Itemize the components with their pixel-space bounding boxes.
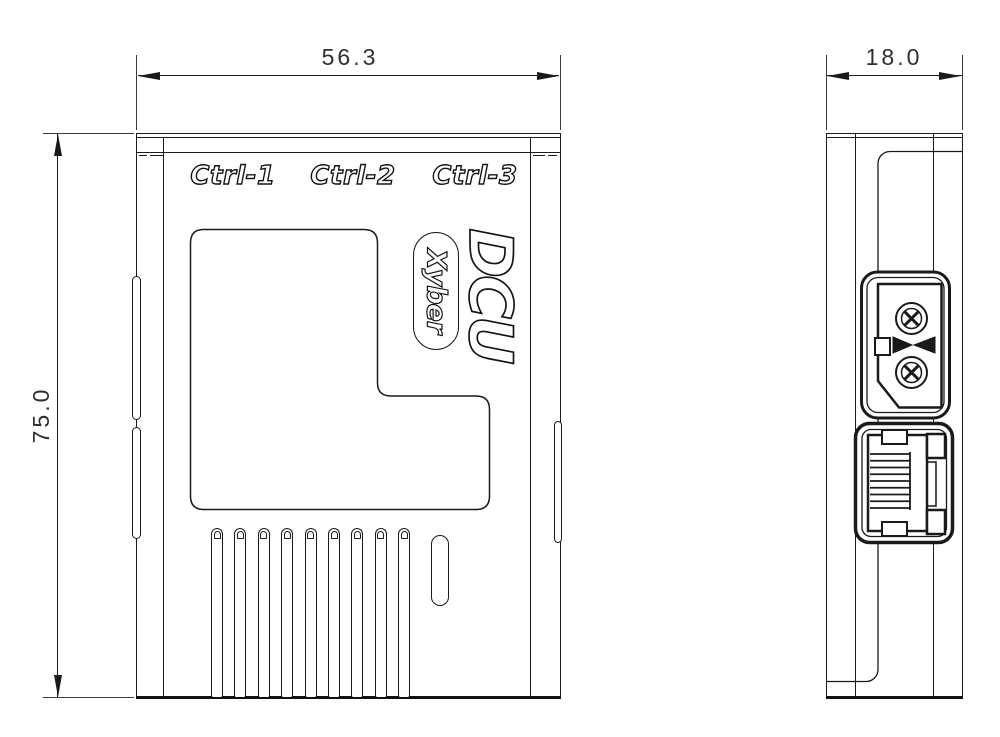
vent-slot-cap <box>377 531 384 539</box>
dim-value-side-depth: 18.0 <box>866 44 923 71</box>
front-seam-dash <box>150 155 163 156</box>
front-seam-dash <box>533 155 545 156</box>
rj45-pin-comb <box>870 452 910 510</box>
vent-slot-cap <box>354 531 361 539</box>
front-right-wall-edge <box>530 137 531 697</box>
dim-ext-line <box>560 55 561 130</box>
dim-ext-line <box>962 55 963 130</box>
vent-slot-cap <box>401 531 408 539</box>
dim-ext-line <box>43 697 134 698</box>
dim-ext-line <box>136 55 137 130</box>
xt30-power-connector <box>856 266 956 422</box>
dim-ext-line <box>826 55 827 130</box>
port-label-ctrl3: Ctrl-3 <box>432 161 517 191</box>
xt30-side-notch <box>875 338 890 355</box>
vent-slot <box>375 528 387 697</box>
dim-arrow-left <box>827 72 849 80</box>
rj45-ethernet-port <box>850 419 958 547</box>
rj45-bottom-notch <box>882 522 907 536</box>
vent-slot <box>211 528 223 697</box>
front-left-wall-edge <box>163 137 164 697</box>
vent-slot-cap <box>284 531 291 539</box>
vent-slot <box>258 528 270 697</box>
vent-slot <box>234 528 246 697</box>
rj45-top-notch <box>882 430 907 444</box>
side-top-cap-line <box>827 137 962 138</box>
vent-slot <box>281 528 293 697</box>
vent-slots <box>211 528 421 697</box>
xt30-bullet-bottom <box>896 357 927 388</box>
dim-value-front-width: 56.3 <box>322 44 379 71</box>
xt30-bullet-top <box>896 303 927 334</box>
reset-slot <box>431 535 449 606</box>
vent-slot-cap <box>214 531 221 539</box>
rj45-latch-tab-top <box>927 434 945 458</box>
logo-xyber-pill: Xyber <box>413 232 459 350</box>
front-seam-dash <box>548 155 557 156</box>
dim-arrow-bottom <box>54 675 62 697</box>
port-label-ctrl1: Ctrl-1 <box>190 161 275 191</box>
left-edge-clip-lower <box>132 427 141 539</box>
vent-slot <box>398 528 410 697</box>
vent-slot <box>305 528 317 697</box>
vent-slot-cap <box>237 531 244 539</box>
technical-drawing-canvas: Ctrl-1 Ctrl-2 Ctrl-3 DCU Xyber <box>0 0 1000 737</box>
front-lid-seam <box>137 152 560 153</box>
dim-arrow-right <box>537 72 559 80</box>
left-edge-clip-upper <box>132 276 141 420</box>
vent-slot-cap <box>307 531 314 539</box>
vent-slot-cap <box>331 531 338 539</box>
vent-slot <box>351 528 363 697</box>
dim-value-front-height: 75.0 <box>28 375 56 455</box>
vent-slot <box>328 528 340 697</box>
right-edge-clip <box>554 421 562 543</box>
dim-arrow-left <box>138 72 160 80</box>
dim-line <box>138 75 559 76</box>
port-label-ctrl2: Ctrl-2 <box>310 161 395 191</box>
dim-line <box>57 134 58 697</box>
front-seam-dash <box>139 155 147 156</box>
rj45-latch-tab-bottom <box>927 510 945 534</box>
rj45-jack-body <box>868 435 927 531</box>
logo-xyber: Xyber <box>421 249 452 333</box>
dim-arrow-right <box>939 72 961 80</box>
logo-dcu: DCU <box>455 228 525 362</box>
dim-arrow-top <box>54 134 62 156</box>
front-top-cap-line <box>137 137 560 138</box>
vent-slot-cap <box>260 531 267 539</box>
